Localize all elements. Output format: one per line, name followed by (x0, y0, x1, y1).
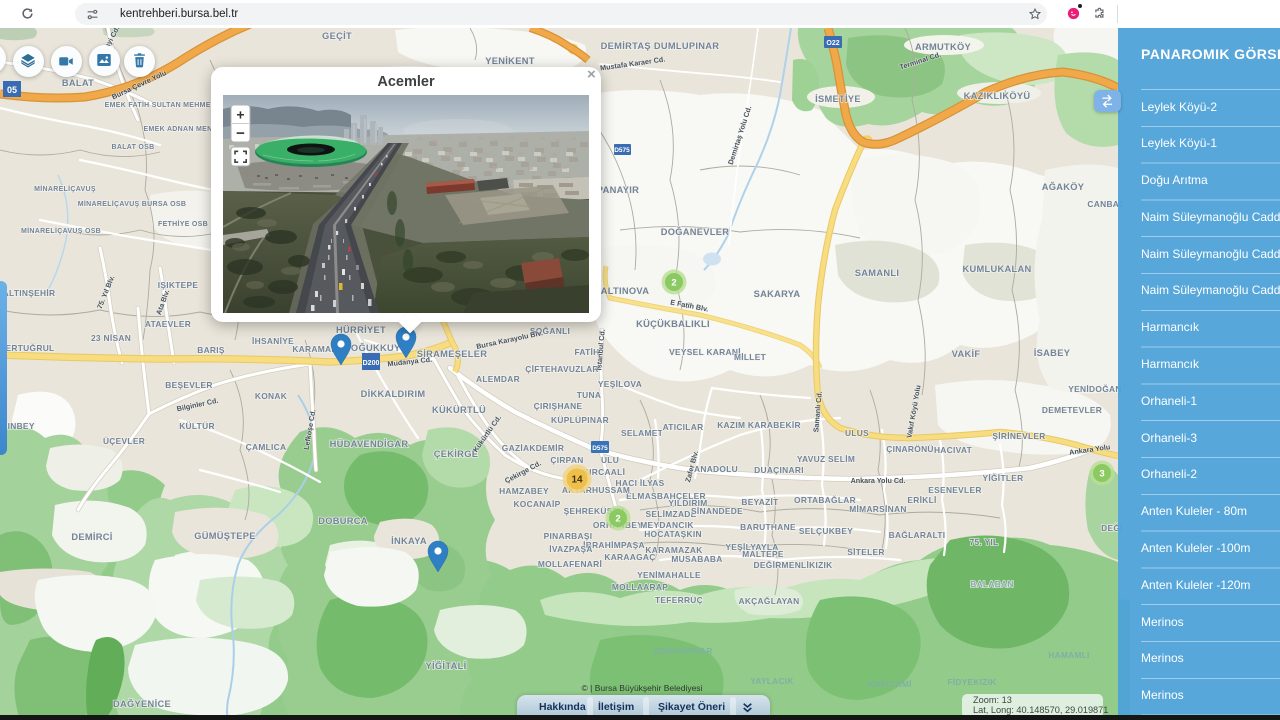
svg-text:DOĞANEVLER: DOĞANEVLER (661, 226, 730, 237)
svg-text:DEĞİRMENLİKIZIK: DEĞİRMENLİKIZIK (754, 559, 833, 570)
svg-text:YEŞİLOVA: YEŞİLOVA (598, 379, 642, 389)
svg-text:D575: D575 (614, 147, 630, 154)
svg-text:KÜPLÜPINAR: KÜPLÜPINAR (551, 415, 609, 425)
svg-text:O22: O22 (826, 40, 839, 47)
svg-text:ÇAMLICA: ÇAMLICA (246, 442, 287, 452)
svg-text:DİKKALDIRIM: DİKKALDIRIM (361, 389, 426, 399)
svg-text:KÜÇÜKBALIKLI: KÜÇÜKBALIKLI (636, 319, 710, 329)
svg-text:İSABEY: İSABEY (1034, 348, 1071, 358)
svg-text:ÇINARÖNÜ: ÇINARÖNÜ (886, 444, 934, 454)
svg-text:MOLLAFENARİ: MOLLAFENARİ (538, 559, 602, 569)
svg-text:YAVUZ SELİM: YAVUZ SELİM (797, 454, 855, 464)
svg-text:PANAYIR: PANAYIR (597, 185, 639, 195)
svg-text:ESENEVLER: ESENEVLER (928, 485, 981, 495)
svg-text:SELÇUKBEY: SELÇUKBEY (799, 526, 853, 536)
svg-text:23 NİSAN: 23 NİSAN (91, 333, 131, 343)
svg-text:BEYAZİT: BEYAZİT (741, 497, 779, 507)
svg-text:SİNANDEDE: SİNANDEDE (691, 506, 743, 516)
svg-text:DUAÇINARI: DUAÇINARI (754, 465, 804, 475)
svg-text:VEYSEL KARANİ: VEYSEL KARANİ (669, 347, 741, 357)
svg-text:AKÇAĞLAYAN: AKÇAĞLAYAN (738, 595, 799, 606)
svg-text:ORTABAĞLAR: ORTABAĞLAR (794, 494, 856, 505)
svg-text:MİNARELİÇAVUŞ: MİNARELİÇAVUŞ (34, 185, 96, 193)
svg-text:YAYLACIK: YAYLACIK (750, 676, 793, 686)
svg-text:ANADOLU: ANADOLU (694, 464, 738, 474)
svg-text:MOLLAARAP: MOLLAARAP (612, 582, 668, 592)
svg-text:MİNARELİÇAVUŞ BURSA OSB: MİNARELİÇAVUŞ BURSA OSB (78, 200, 186, 208)
svg-text:DEMETEVLER: DEMETEVLER (1042, 405, 1102, 415)
svg-text:SAKARYA: SAKARYA (754, 289, 801, 299)
svg-text:ULU: ULU (601, 455, 619, 465)
svg-text:KÜKÜRTLÜ: KÜKÜRTLÜ (432, 405, 486, 415)
svg-text:İVAZPAŞA: İVAZPAŞA (549, 544, 593, 554)
svg-text:TEFERRÜÇ: TEFERRÜÇ (655, 595, 703, 605)
svg-text:KONAK: KONAK (255, 391, 287, 401)
svg-text:BARIŞ: BARIŞ (197, 345, 225, 355)
svg-text:BARUTHANE: BARUTHANE (740, 522, 796, 532)
svg-text:FİDYEKIZIK: FİDYEKIZIK (947, 677, 996, 687)
svg-text:HAMZABEY: HAMZABEY (499, 486, 549, 496)
svg-text:3: 3 (1099, 469, 1104, 480)
svg-text:İNKAYA: İNKAYA (391, 536, 427, 546)
svg-text:KAZIKLIKÖYÜ: KAZIKLIKÖYÜ (964, 91, 1031, 101)
svg-text:2: 2 (615, 514, 620, 525)
svg-text:ALTINOVA: ALTINOVA (601, 286, 650, 296)
svg-text:SELAMET: SELAMET (621, 428, 664, 438)
svg-text:DOBURCA: DOBURCA (318, 516, 368, 526)
svg-text:ULUS: ULUS (845, 428, 869, 438)
svg-text:EMEK FATİH SULTAN MEHMET: EMEK FATİH SULTAN MEHMET (105, 101, 216, 109)
svg-text:ÇEKİRGE: ÇEKİRGE (434, 449, 478, 459)
svg-text:GAZİAKDEMİR: GAZİAKDEMİR (502, 443, 564, 453)
svg-text:IŞIKTEPE: IŞIKTEPE (158, 280, 199, 290)
svg-text:ÇIRIŞHANE: ÇIRIŞHANE (534, 401, 583, 411)
svg-text:VAKİF: VAKİF (952, 349, 981, 359)
svg-text:DEMİRTAŞ DUMLUPINAR: DEMİRTAŞ DUMLUPINAR (601, 41, 720, 51)
svg-text:YENİMAHALLE: YENİMAHALLE (637, 570, 701, 580)
svg-text:2: 2 (671, 278, 676, 289)
svg-text:KAZIM KARABEKİR: KAZIM KARABEKİR (717, 420, 801, 430)
svg-text:MİLLET: MİLLET (734, 352, 767, 362)
svg-text:YENİDOĞAN: YENİDOĞAN (1068, 383, 1121, 394)
svg-text:D575: D575 (592, 445, 608, 452)
svg-text:Ankara Yolu Cd.: Ankara Yolu Cd. (851, 476, 906, 485)
svg-text:14: 14 (571, 475, 583, 486)
svg-text:EMEK ADNAN MEN: EMEK ADNAN MEN (144, 126, 213, 133)
svg-text:ÇİFTEHAVUZLAR: ÇİFTEHAVUZLAR (525, 364, 599, 374)
svg-text:KOCANAİP: KOCANAİP (513, 499, 560, 509)
svg-text:İHSANİYE: İHSANİYE (252, 336, 294, 346)
svg-text:KARAMAN: KARAMAN (292, 344, 337, 354)
svg-text:ALEMDAR: ALEMDAR (476, 374, 520, 384)
svg-text:ERİKLİ: ERİKLİ (907, 495, 936, 505)
svg-text:AĞAKÖY: AĞAKÖY (1042, 181, 1085, 192)
svg-text:ATICILAR: ATICILAR (663, 422, 704, 432)
svg-text:MİMARSİNAN: MİMARSİNAN (849, 504, 906, 514)
svg-text:SİTELER: SİTELER (847, 547, 884, 557)
svg-text:MUSABABA: MUSABABA (671, 554, 722, 564)
svg-text:BAĞLARALTI: BAĞLARALTI (889, 529, 946, 540)
svg-text:ERTUĞRUL: ERTUĞRUL (6, 342, 55, 353)
svg-text:KUMLUKALAN: KUMLUKALAN (962, 264, 1031, 274)
svg-text:YİĞİTLER: YİĞİTLER (982, 472, 1023, 483)
svg-text:SELİMZADE: SELİMZADE (645, 509, 696, 519)
svg-text:MİNARELİÇAVUŞ OSB: MİNARELİÇAVUŞ OSB (21, 227, 101, 235)
svg-text:75. YIL: 75. YIL (970, 537, 999, 547)
svg-text:BALAT OSB: BALAT OSB (111, 144, 154, 151)
svg-text:05: 05 (7, 85, 17, 95)
svg-text:ALTINŞEHİR: ALTINŞEHİR (3, 288, 56, 298)
svg-text:ÇIRPAN: ÇIRPAN (550, 455, 583, 465)
svg-text:DAĞYENİCE: DAĞYENİCE (113, 698, 171, 709)
svg-text:SAMANLI: SAMANLI (855, 268, 899, 278)
svg-text:HAMAMLI: HAMAMLI (1048, 650, 1089, 660)
svg-text:ŞİRİNEVLER: ŞİRİNEVLER (992, 431, 1045, 441)
svg-text:GEÇİT: GEÇİT (322, 31, 352, 41)
svg-text:BEŞEVLER: BEŞEVLER (165, 380, 213, 390)
svg-text:DEMİRCİ: DEMİRCİ (71, 532, 112, 542)
svg-text:ARMUTKÖY: ARMUTKÖY (915, 42, 972, 52)
svg-text:MALTEPE: MALTEPE (742, 549, 784, 559)
svg-text:HÜDAVENDİGAR: HÜDAVENDİGAR (330, 439, 409, 449)
svg-text:FETHİYE OSB: FETHİYE OSB (158, 220, 208, 228)
svg-text:+: + (236, 107, 244, 123)
svg-text:GÜMÜŞTEPE: GÜMÜŞTEPE (194, 531, 256, 541)
svg-text:BALAT: BALAT (62, 78, 94, 88)
svg-text:ÜÇEVLER: ÜÇEVLER (103, 436, 145, 446)
svg-text:D200: D200 (363, 360, 380, 367)
svg-text:KÜLTÜR: KÜLTÜR (179, 421, 215, 431)
svg-text:© | Bursa Büyükşehir Belediyes: © | Bursa Büyükşehir Belediyesi (582, 683, 703, 693)
svg-text:SOĞUKPINAR: SOĞUKPINAR (653, 645, 712, 656)
svg-text:İSMETİYE: İSMETİYE (815, 94, 861, 104)
svg-text:KAPICAMİ: KAPICAMİ (868, 679, 911, 689)
svg-text:ATAEVLER: ATAEVLER (145, 319, 191, 329)
svg-text:HOCATAŞKIN: HOCATAŞKIN (644, 529, 702, 539)
svg-text:−: − (236, 125, 245, 142)
svg-text:YİĞİTALİ: YİĞİTALİ (426, 660, 467, 671)
svg-text:HACIVAT: HACIVAT (934, 445, 973, 455)
svg-text:HÜRRİYET: HÜRRİYET (336, 325, 386, 335)
svg-text:YENİKENT: YENİKENT (485, 56, 534, 66)
svg-text:TUNA: TUNA (577, 390, 601, 400)
svg-text:BALABAN: BALABAN (970, 579, 1014, 589)
